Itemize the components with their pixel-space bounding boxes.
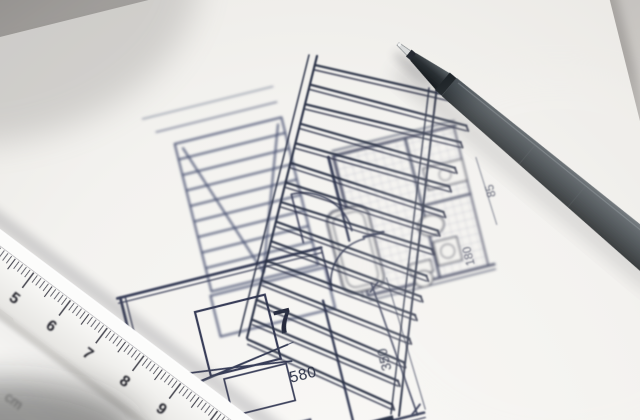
photo-architectural-plan: 7 580 350 85 180 80 4: [0, 0, 640, 420]
photo-canvas: 7 580 350 85 180 80 4: [0, 0, 640, 420]
